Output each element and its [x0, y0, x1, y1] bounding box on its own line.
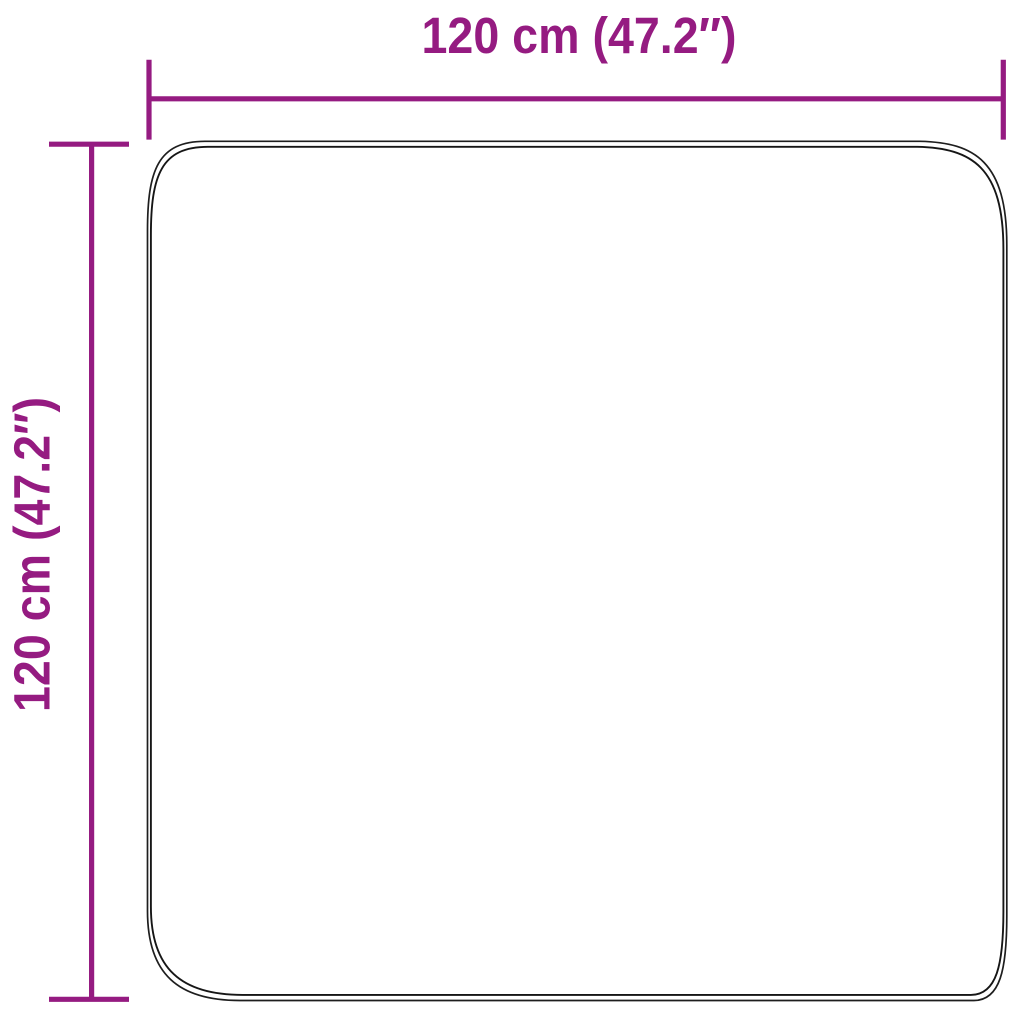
svg-text:120 cm (47.2″): 120 cm (47.2″): [422, 7, 737, 64]
svg-text:120 cm (47.2″): 120 cm (47.2″): [4, 397, 61, 712]
